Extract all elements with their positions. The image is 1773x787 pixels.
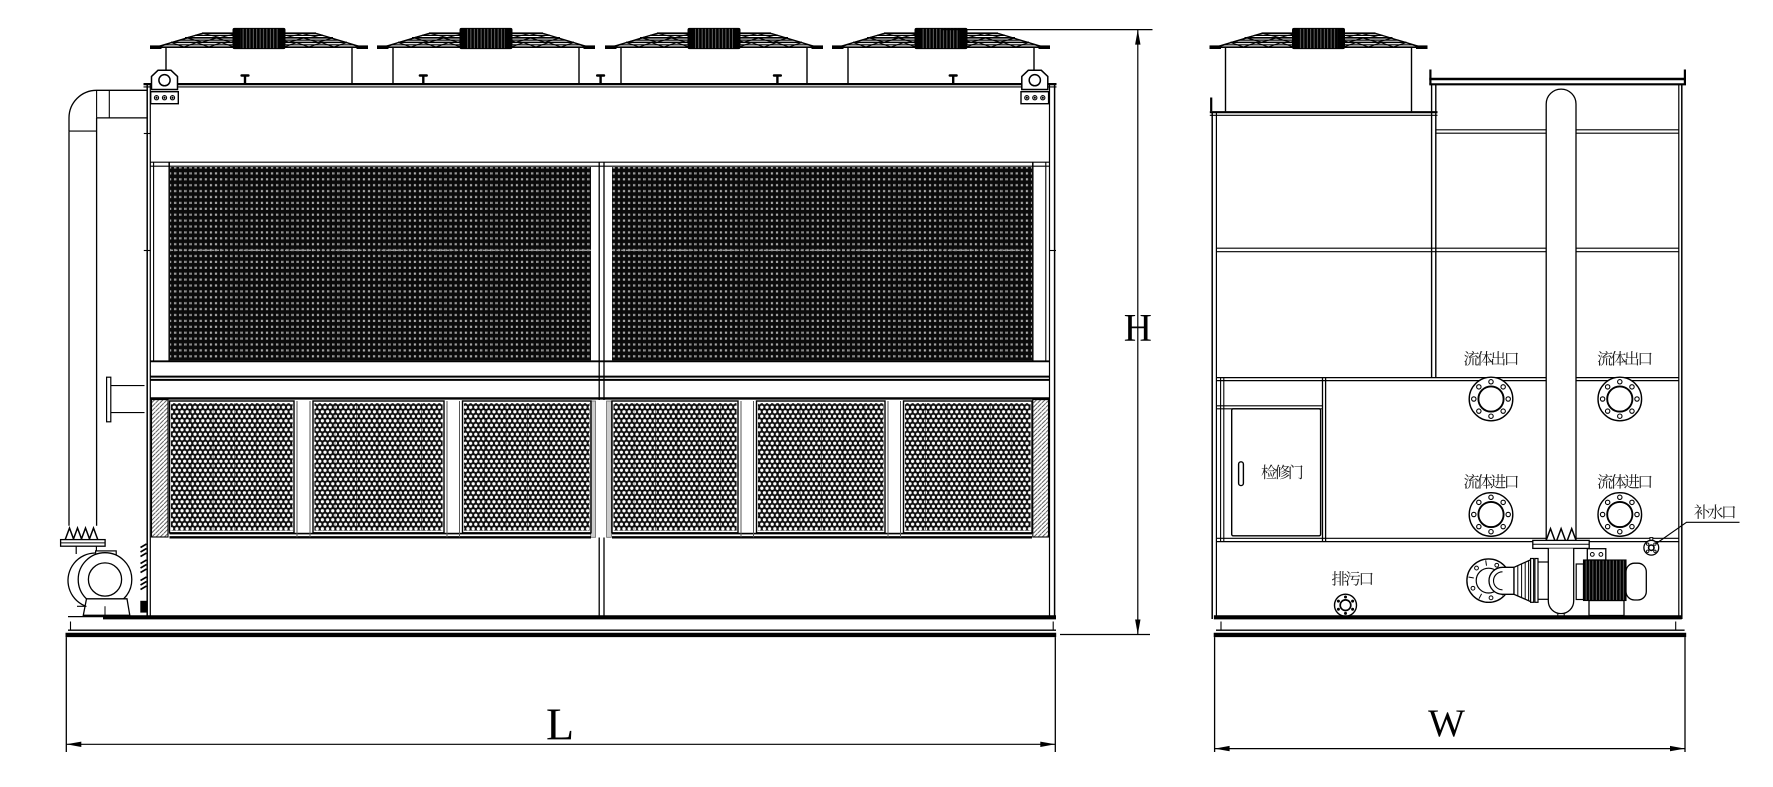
svg-text:H: H: [1124, 307, 1152, 350]
svg-text:W: W: [1428, 702, 1465, 745]
svg-text:L: L: [546, 699, 574, 750]
